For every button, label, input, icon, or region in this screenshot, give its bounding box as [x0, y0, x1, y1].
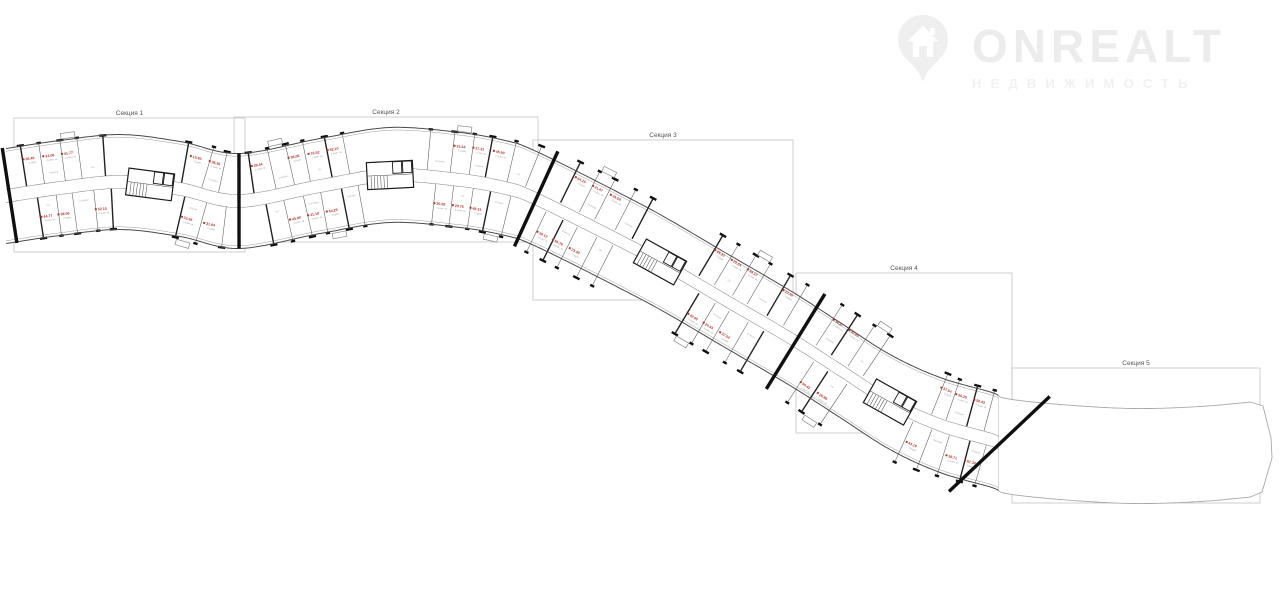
exterior-wall-segment	[672, 332, 678, 336]
exterior-wall-segment	[172, 236, 179, 238]
unit-marker-icon	[307, 214, 309, 216]
exterior-wall-segment	[555, 267, 559, 269]
balcony	[802, 415, 817, 427]
exterior-wall-segment	[840, 304, 844, 306]
balcony	[674, 336, 689, 348]
exterior-wall-segment	[265, 148, 269, 149]
exterior-wall-segment	[612, 177, 618, 180]
exterior-wall-segment	[974, 385, 981, 387]
exterior-wall-segment	[650, 197, 656, 200]
exterior-wall-segment	[893, 461, 897, 463]
exterior-wall-segment	[972, 485, 976, 486]
unit-marker-icon	[95, 208, 97, 210]
balcony	[268, 138, 283, 146]
section5-outline	[998, 396, 1272, 504]
unit-marker-icon	[307, 153, 309, 155]
unit-marker-icon	[493, 150, 495, 152]
exterior-wall-segment	[993, 390, 997, 391]
exterior-wall-segment	[723, 362, 727, 364]
unit-marker-icon	[452, 204, 454, 206]
exterior-wall-segment	[514, 141, 518, 142]
balcony	[758, 250, 773, 262]
exterior-wall-segment	[818, 423, 822, 425]
exterior-wall-segment	[524, 251, 528, 253]
exterior-wall-segment	[540, 259, 546, 262]
unit-marker-icon	[40, 216, 42, 218]
unit-marker-icon	[287, 157, 289, 159]
exterior-wall-segment	[573, 276, 579, 279]
unit-marker-icon	[22, 158, 24, 160]
exterior-wall-segment	[873, 324, 877, 326]
unit-marker-icon	[326, 210, 328, 212]
balcony	[602, 166, 617, 177]
exterior-wall-segment	[945, 372, 952, 375]
exterior-wall-segment	[212, 146, 216, 147]
exterior-wall-segment	[769, 263, 773, 265]
balcony	[60, 132, 75, 139]
exterior-wall-segment	[799, 410, 805, 414]
exterior-wall-segment	[703, 350, 709, 354]
balcony	[483, 234, 498, 243]
unit-marker-icon	[61, 153, 63, 155]
exterior-wall-segment	[538, 145, 545, 148]
exterior-wall-segment	[720, 233, 726, 237]
exterior-wall-segment	[634, 189, 638, 191]
unit-marker-icon	[42, 155, 44, 157]
section-label: Секция 5	[1122, 360, 1150, 367]
exterior-wall-segment	[737, 243, 741, 245]
exterior-wall-segment	[590, 285, 594, 287]
unit-marker-icon	[251, 165, 253, 167]
balcony	[877, 321, 892, 333]
floor-plan: Секция 1Секция 2Секция 3Секция 4Секция 5…	[0, 0, 1280, 590]
balcony	[457, 126, 472, 133]
exterior-wall-segment	[737, 370, 743, 374]
exterior-wall-segment	[887, 333, 893, 337]
balcony	[332, 231, 347, 239]
exterior-wall-segment	[598, 170, 602, 172]
exterior-wall-segment	[806, 284, 810, 286]
page: { "page": {"width": 1280, "height": 590,…	[0, 0, 1280, 590]
section-label: Секция 1	[116, 110, 144, 117]
exterior-wall-segment	[958, 379, 962, 380]
unit-marker-icon	[469, 207, 471, 209]
exterior-wall-segment	[499, 236, 503, 237]
unit-marker-icon	[57, 213, 59, 215]
exterior-wall-segment	[690, 342, 694, 344]
unit-area: 52.10	[98, 207, 107, 212]
stair-core	[126, 168, 175, 201]
exterior-wall-segment	[340, 133, 344, 134]
balcony	[175, 239, 190, 248]
unit-marker-icon	[433, 202, 435, 204]
exterior-wall-segment	[935, 475, 939, 476]
exterior-wall-segment	[309, 236, 316, 238]
unit-marker-icon	[472, 147, 474, 149]
exterior-wall-segment	[300, 140, 304, 141]
exterior-wall-segment	[577, 160, 583, 163]
unit-marker-icon	[203, 222, 205, 224]
section-label: Секция 4	[890, 265, 918, 272]
exterior-wall-segment	[193, 243, 197, 244]
unit-marker-icon	[453, 145, 455, 147]
section-label: Секция 3	[649, 132, 677, 139]
stair-core	[366, 160, 413, 189]
unit-marker-icon	[326, 149, 328, 151]
exterior-wall-segment	[785, 401, 789, 403]
section-label: Секция 2	[372, 109, 400, 116]
exterior-wall-segment	[913, 469, 920, 472]
exterior-wall-segment	[855, 313, 861, 317]
exterior-wall-segment	[291, 241, 295, 242]
